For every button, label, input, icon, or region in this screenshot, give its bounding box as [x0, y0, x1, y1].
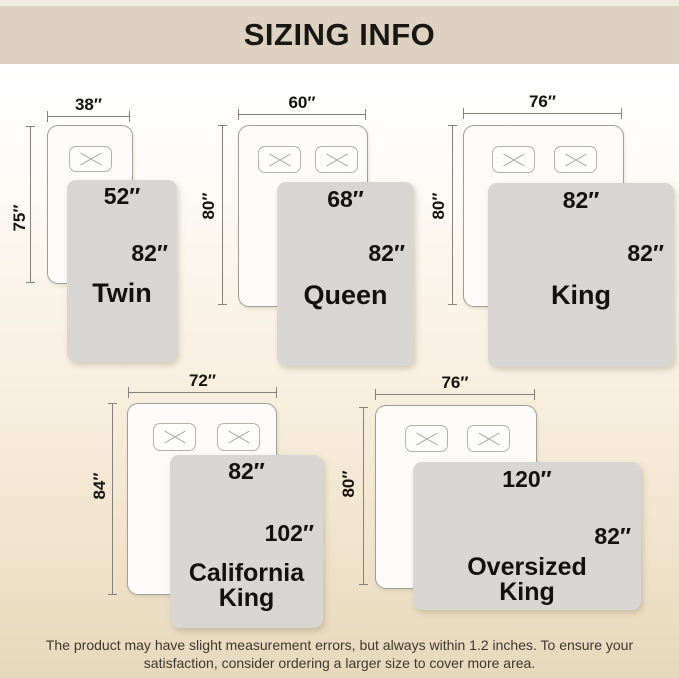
blanket-length-label: 82″ [413, 523, 631, 550]
size-name: Oversized King [413, 555, 641, 605]
pillow-x-icon [406, 426, 447, 451]
size-name-line1: Oversized [413, 555, 641, 580]
mattress-length-label: 80″ [339, 454, 359, 514]
mattress-width-label: 76″ [375, 373, 535, 393]
blanket: 120″ 82″ Oversized King [413, 462, 641, 610]
length-dimension-line [363, 407, 364, 585]
disclaimer-line1: The product may have slight measurement … [0, 637, 679, 655]
pillow [405, 425, 448, 452]
diagram-oversized-king: 76″ 80″ 120″ 82″ Oversized King [0, 0, 679, 678]
pillow-x-icon [468, 426, 509, 451]
blanket-width-label: 120″ [413, 466, 641, 493]
size-name-line2: King [413, 580, 641, 605]
width-dimension-line [375, 394, 535, 395]
pillow [467, 425, 510, 452]
disclaimer-line2: satisfaction, consider ordering a larger… [0, 655, 679, 673]
disclaimer-note: The product may have slight measurement … [0, 637, 679, 672]
